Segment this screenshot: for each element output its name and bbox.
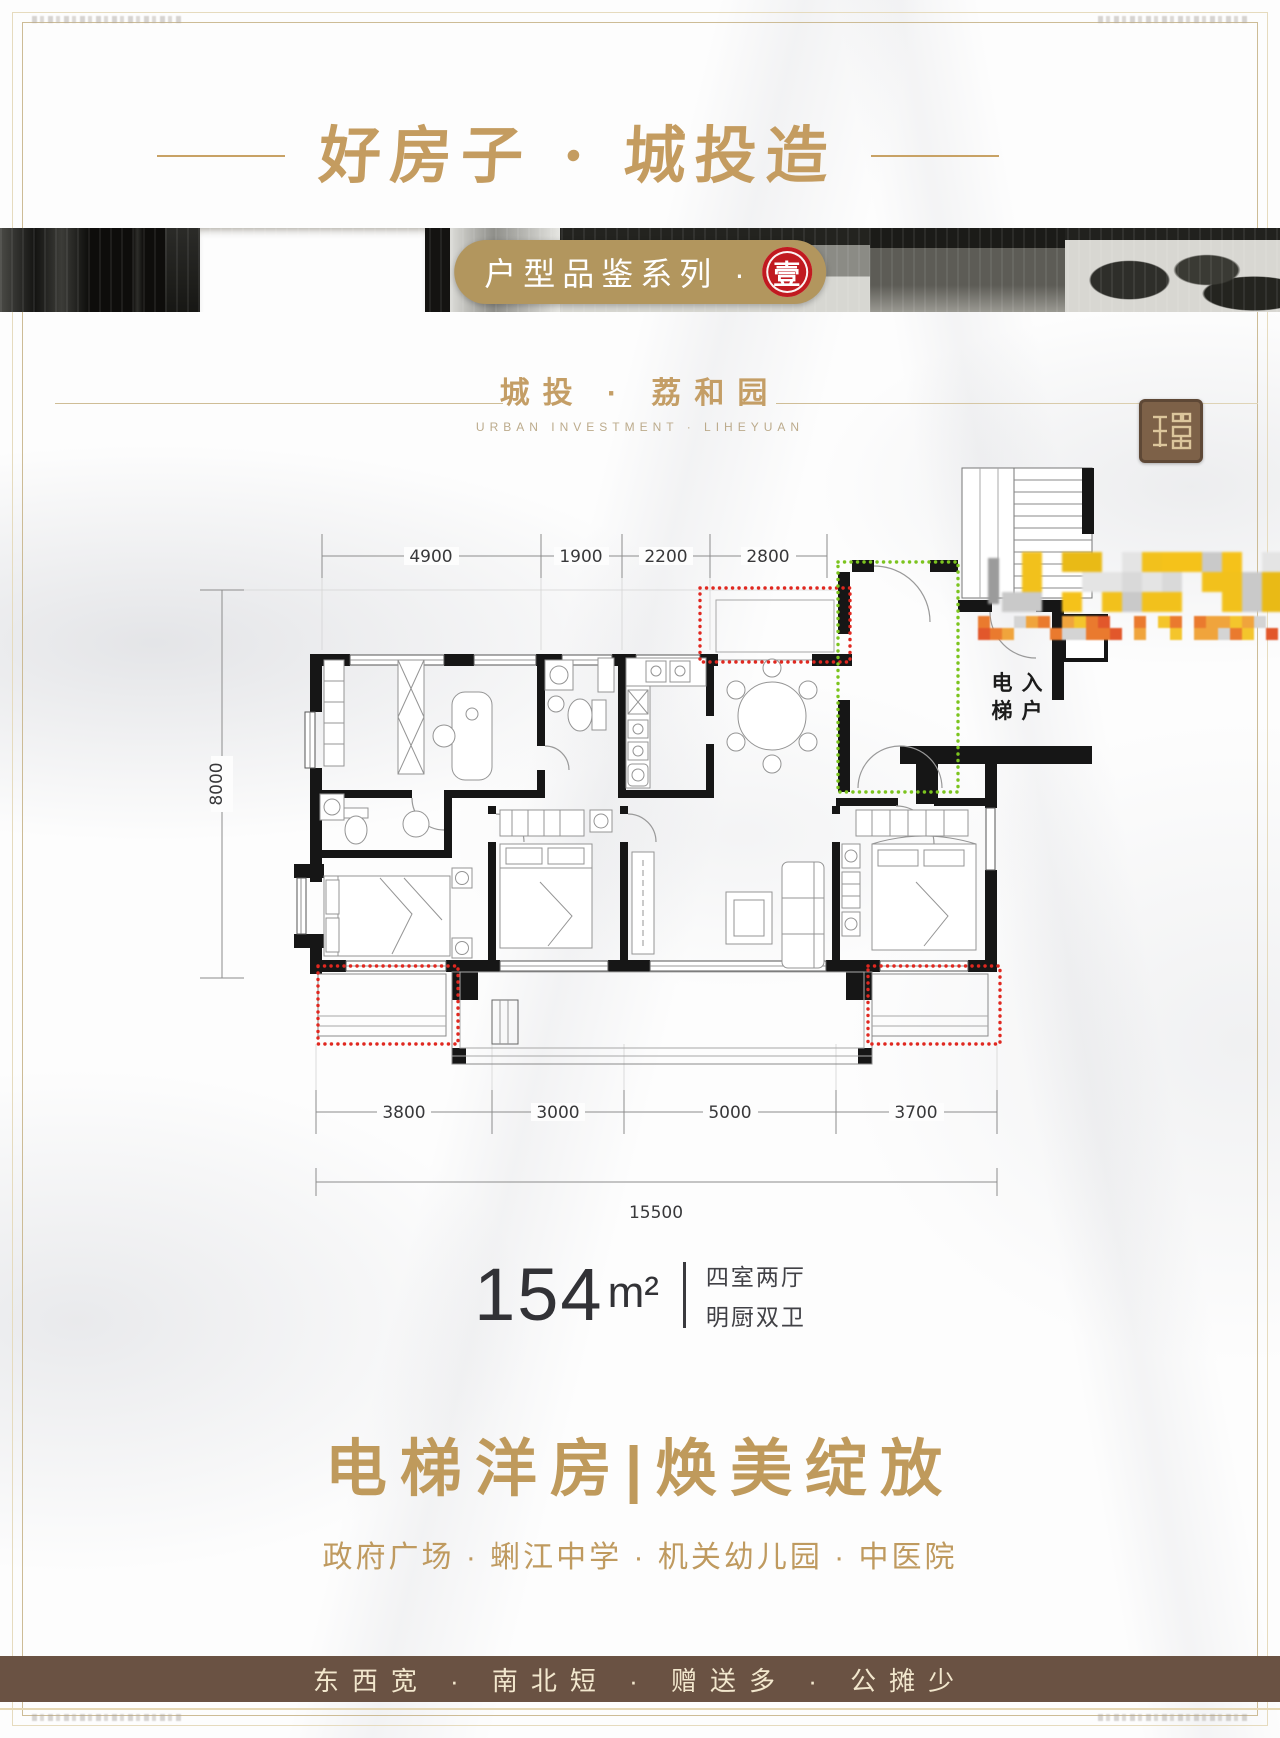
border-caption-top-left (32, 16, 182, 23)
elevator-char-1: 电 (992, 672, 1013, 695)
brand-name: 城投 · 荔和园 (0, 368, 1280, 412)
title-line-right (871, 155, 999, 157)
spec-divider (683, 1262, 686, 1328)
footer-slogan: 东西宽 · 南北短 · 赠送多 · 公摊少 (313, 1661, 967, 1698)
red-dotted-area-top (700, 588, 850, 662)
elevator-char-4: 户 (1022, 699, 1043, 723)
layout-spec-rooms: 四室两厅 (706, 1258, 806, 1292)
dim-bottom-2: 3000 (536, 1103, 579, 1123)
elevator-char-3: 入 (1022, 672, 1043, 695)
brand-seal (1139, 399, 1203, 463)
dim-top-3: 2200 (644, 547, 687, 567)
dim-top-2: 1900 (559, 547, 602, 567)
poster-header: 好房子 · 城投造 (0, 108, 1218, 204)
dim-total: 15500 (629, 1203, 683, 1223)
red-dotted-area-right (868, 966, 1000, 1044)
series-badge: 户型品鉴系列 · 壹 (454, 240, 826, 304)
sub-headline: 政府广场 · 蜊江中学 · 机关幼儿园 · 中医院 (0, 1532, 1280, 1576)
dim-top-1: 4900 (409, 547, 452, 567)
furniture (320, 658, 976, 968)
series-number-seal: 壹 (762, 247, 812, 297)
dim-bottom-4: 3700 (894, 1103, 937, 1123)
series-number: 壹 (773, 253, 800, 292)
layout-specs: 四室两厅 明厨双卫 (706, 1258, 806, 1332)
brand-divider-left (55, 403, 503, 404)
dim-bottom-3: 5000 (708, 1103, 751, 1123)
dim-bottom-1: 3800 (382, 1103, 425, 1123)
unit-spec-row: 154 m² 四室两厅 明厨双卫 (0, 1258, 1280, 1332)
censored-watermark-bar (988, 558, 999, 604)
border-caption-bottom-left (32, 1714, 182, 1721)
series-badge-label: 户型品鉴系列 · (484, 249, 752, 295)
layout-spec-bright: 明厨双卫 (706, 1298, 806, 1332)
dim-top-4: 2800 (746, 547, 789, 567)
brand-subtitle: URBAN INVESTMENT · LIHEYUAN (0, 420, 1280, 434)
calligraphy-title: 好房子 · 城投造 (317, 108, 840, 204)
border-caption-bottom-right (1098, 1714, 1248, 1721)
footer-banner-underline (0, 1708, 1280, 1710)
brand-seal-glyph (1149, 409, 1193, 453)
main-headline: 电梯洋房|焕美绽放 (0, 1418, 1280, 1508)
area-unit: m² (608, 1258, 659, 1318)
border-caption-top-right (1098, 16, 1248, 23)
project-photo-strip: 户型品鉴系列 · 壹 (0, 228, 1280, 312)
censored-contact-watermark-line1 (1002, 552, 1280, 612)
footer-banner: 东西宽 · 南北短 · 赠送多 · 公摊少 (0, 1656, 1280, 1702)
real-estate-poster: 好房子 · 城投造 户型品鉴系列 · 壹 城投 · 荔和园 URBAN INVE… (0, 0, 1280, 1738)
censored-contact-watermark-line2 (966, 616, 1278, 640)
elevator-entry-label: 电 梯 入 户 (992, 672, 1043, 723)
red-dotted-area-left (318, 966, 458, 1044)
area-value: 154 (474, 1258, 603, 1332)
dim-left: 8000 (207, 762, 227, 805)
elevator-char-2: 梯 (992, 699, 1013, 723)
title-line-left (157, 155, 285, 157)
